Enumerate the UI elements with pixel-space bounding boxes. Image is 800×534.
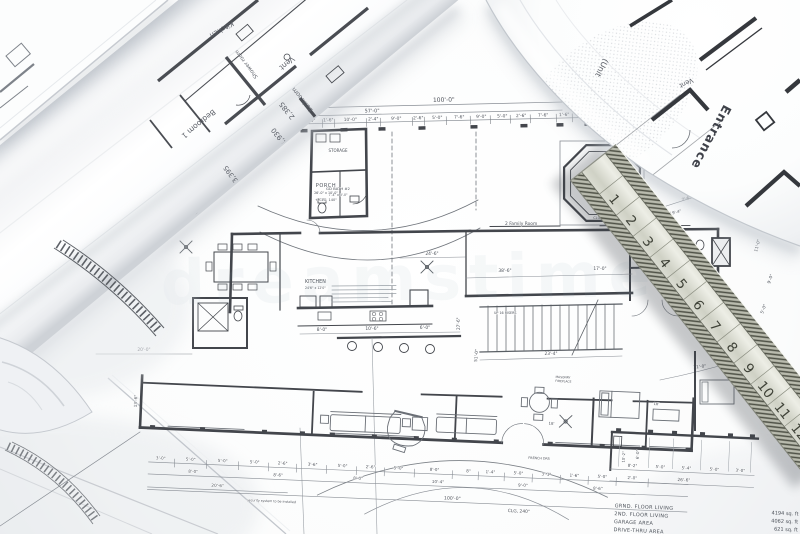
- dim-label: 13'-6": [133, 395, 139, 408]
- dim-label: 7'-6": [454, 114, 465, 120]
- dim-label: 3'-6": [308, 462, 318, 467]
- area-row-value: 4062 sq. ft: [771, 518, 798, 525]
- dim-label: 8'-2": [628, 463, 638, 468]
- dim-label: 5'-0": [432, 115, 443, 121]
- dim-label: 8'-6": [273, 472, 283, 477]
- room-label: STORAGE: [328, 148, 348, 153]
- dim-label: 57'-0": [365, 108, 380, 114]
- dim-label: 5'-0": [186, 457, 196, 462]
- dim-label: 8'-6": [593, 486, 603, 491]
- room-label: 2 Family Room: [505, 221, 537, 227]
- dim-label: 5'-0": [597, 474, 607, 479]
- dim-label: 18': [549, 421, 555, 426]
- dim-label: 27'-6": [456, 317, 461, 330]
- dim-label: 5'-0": [656, 464, 666, 469]
- dim-label: 5'-0": [709, 466, 719, 471]
- dim-label: 100'-0": [444, 495, 461, 502]
- dim-label: 9'-0": [518, 482, 528, 487]
- area-row-value: 621 sq. ft: [774, 526, 798, 533]
- dim-label: 2'-6": [516, 113, 527, 119]
- dim-label: 9'-0": [391, 116, 402, 122]
- dim-label: 8": [466, 468, 471, 473]
- photo-architectural-blueprints: 100'-0" 57'-0" 5'-0" 1'-6" 10'-0" 2'-4" …: [0, 0, 800, 534]
- dim-label: 7'-6": [538, 112, 549, 118]
- dim-label: 9'-0": [476, 114, 487, 120]
- dim-label: 23'-4": [545, 351, 558, 357]
- dim-label: 3'-0": [735, 468, 745, 473]
- dim-label: 6'-0": [635, 449, 640, 459]
- room-label: 26'-0" x 10'-0": [314, 191, 338, 195]
- dim-label: 51'-0": [473, 349, 480, 362]
- dim-label: 8'-0": [317, 327, 327, 333]
- room-label: CLG, 240": [508, 508, 530, 515]
- dim-label: 8'-0": [188, 469, 198, 474]
- room-label: FIREPLACE: [555, 379, 571, 384]
- dim-label: 2'-6": [413, 115, 424, 121]
- dim-label: 6'-0": [420, 325, 430, 331]
- dim-label: 20'-6": [211, 483, 224, 489]
- dim-label: 10'-4": [432, 479, 445, 485]
- dim-label: 5'-0": [218, 458, 228, 463]
- watermark: dreamstime: [160, 238, 659, 320]
- area-row-label: DRIVE-THRU AREA: [613, 527, 664, 534]
- dim-label: 8'-0": [430, 467, 440, 472]
- dim-label: 5'-4": [681, 465, 691, 470]
- dim-label: 100'-0": [433, 96, 455, 103]
- dim-label: 10'-6": [365, 326, 378, 332]
- area-row-value: 4194 sq. ft: [771, 510, 798, 517]
- dim-label: 10'-2": [621, 451, 627, 463]
- dim-label: 5'-0": [513, 470, 523, 475]
- dim-label: 1'-6": [569, 473, 579, 478]
- dim-label: 1'-4": [486, 469, 496, 474]
- dim-label: 3'-1": [541, 471, 551, 476]
- dim-label: 18': [653, 401, 659, 406]
- dim-label: 3'-0": [156, 455, 166, 460]
- room-label: + CLG. 140": [315, 198, 337, 202]
- dim-label: 8'-0": [353, 476, 363, 481]
- dim-label: 5'-0": [394, 465, 404, 470]
- dim-label: 2'-4": [368, 116, 379, 122]
- dim-label: 5'-0": [338, 463, 348, 468]
- dim-label: 2'-6": [278, 460, 288, 465]
- dim-label: 5'-0": [497, 113, 508, 119]
- dim-label: 2'-6": [366, 464, 376, 469]
- room-label: PORCH: [316, 183, 336, 189]
- dim-label: 5'-0": [250, 459, 260, 464]
- dim-label: 2'-0": [627, 475, 637, 480]
- dim-label: 26'-6": [677, 477, 690, 484]
